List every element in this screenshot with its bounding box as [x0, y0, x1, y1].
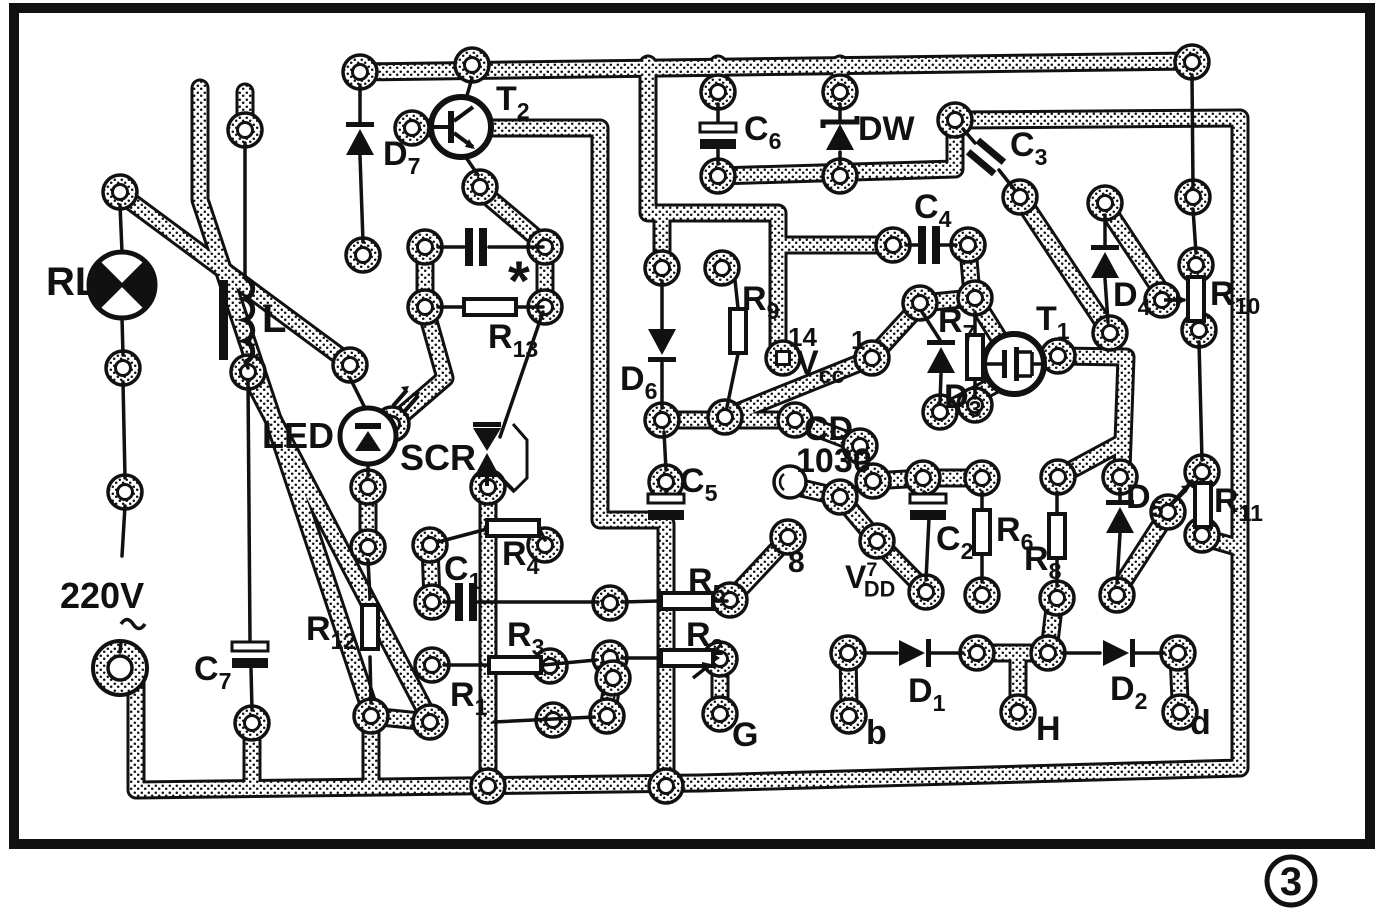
wire [120, 642, 121, 652]
label-star: * [508, 249, 530, 312]
wire [251, 669, 252, 710]
component-r12-sym [362, 605, 378, 649]
component-led-sym [340, 408, 396, 464]
solder-pad [1161, 636, 1195, 670]
pcb-diagram: RLLLEDSCRD7T2R13*C6DWC3C4D4R10T1R7D3R914… [0, 0, 1392, 916]
wire [368, 560, 370, 598]
wire [664, 432, 666, 470]
label-h: H [1036, 710, 1061, 748]
label-rl: RL [46, 260, 99, 304]
solder-pad [471, 769, 505, 803]
component-t2-sym [431, 97, 491, 157]
label-scr: SCR [400, 437, 476, 478]
label-n1030: 1030 [796, 442, 872, 480]
component-r4-sym [487, 520, 539, 536]
label-v220: 220V [60, 575, 144, 616]
label-l: L [262, 297, 286, 341]
solder-pad [965, 461, 999, 495]
solder-pad [906, 461, 940, 495]
component-t1-sym [984, 334, 1044, 394]
wire [370, 657, 371, 703]
solder-pad [903, 286, 937, 320]
solder-pad [832, 699, 866, 733]
solder-pad [860, 524, 894, 558]
label-dw: DW [858, 110, 916, 148]
solder-pad [1001, 695, 1035, 729]
wire [1192, 75, 1193, 187]
diagram-canvas: RLLLEDSCRD7T2R13*C6DWC3C4D4R10T1R7D3R914… [0, 0, 1392, 916]
solder-pad [649, 769, 683, 803]
label-pin1: 1 [851, 325, 865, 355]
solder-pad [1003, 180, 1037, 214]
solder-pad [413, 528, 447, 562]
solder-pad [463, 170, 497, 204]
label-d: d [1190, 704, 1211, 742]
solder-pad [1041, 460, 1075, 494]
solder-pad [596, 661, 630, 695]
solder-pad [413, 705, 447, 739]
wire [248, 380, 250, 640]
label-g: G [732, 716, 758, 754]
label-b: b [866, 714, 887, 752]
solder-pad [823, 480, 857, 514]
wire [123, 382, 125, 478]
solder-pad [958, 281, 992, 315]
component-r8-sym [1049, 514, 1065, 558]
solder-pad [831, 636, 865, 670]
component-r10-sym [1188, 277, 1204, 321]
wire [622, 601, 659, 602]
solder-pad [1031, 636, 1065, 670]
solder-pad [708, 400, 742, 434]
component-r6-sym [974, 510, 990, 554]
page-number: 3 [1280, 860, 1302, 904]
label-led: LED [262, 415, 334, 456]
wire [120, 205, 122, 252]
solder-pad [108, 475, 142, 509]
solder-pad [960, 636, 994, 670]
component-r11-sym [1195, 483, 1211, 527]
wire [940, 374, 941, 402]
label-pin8: 8 [788, 546, 805, 579]
solder-pad [1093, 316, 1127, 350]
page-number-badge: 3 [1267, 857, 1315, 905]
wire [122, 318, 123, 355]
